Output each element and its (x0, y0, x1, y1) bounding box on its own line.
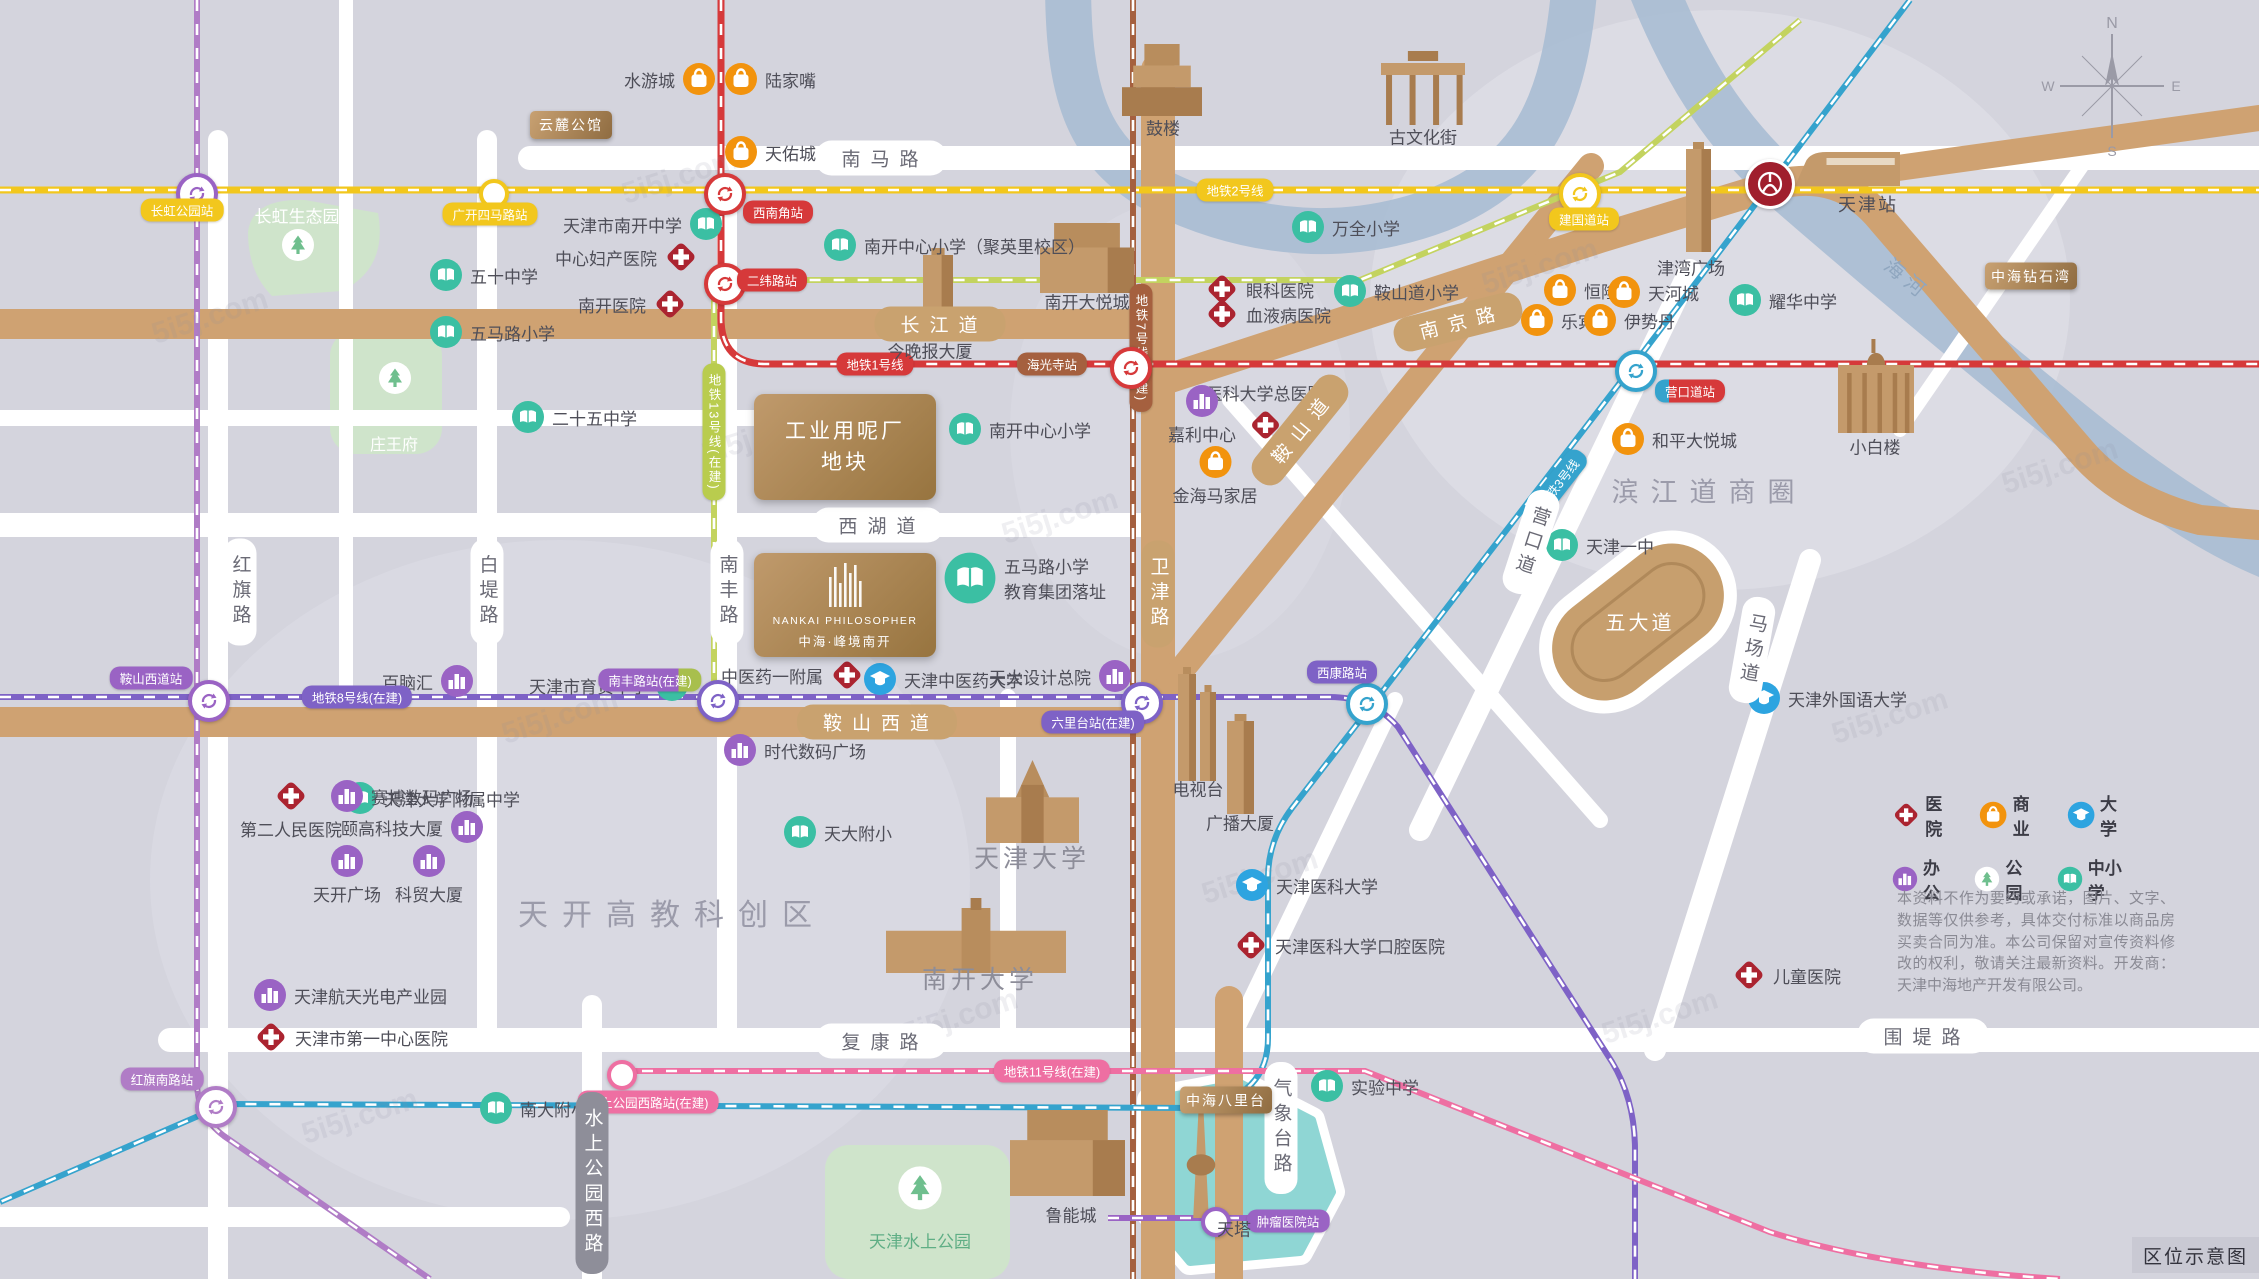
school-icon (429, 315, 463, 349)
shop-icon (1979, 800, 2007, 830)
poi-school: 天大附小 (783, 815, 892, 849)
metro-line-label: 地铁13号线(在建) (703, 363, 726, 500)
school-icon (1333, 274, 1367, 308)
poi-label: 南开中心小学 (989, 417, 1091, 442)
office-icon (253, 978, 287, 1012)
poi-label: 天佑城 (765, 140, 816, 165)
poi-school: 耀华中学 (1728, 283, 1837, 317)
interchange-icon (715, 274, 735, 294)
poi-hosp: 儿童医院 (1732, 958, 1841, 992)
school-icon (511, 400, 545, 434)
hosp-icon (254, 1020, 288, 1054)
poi-hosp: 中心妇产医院 (555, 240, 698, 274)
road-label: 西湖道 (812, 508, 943, 543)
map-label: 滨江道商圈 (1612, 471, 1807, 510)
road-label: 红旗路 (224, 539, 257, 646)
road-label: 围堤路 (1857, 1019, 1988, 1054)
station-interchange (1615, 350, 1657, 392)
shop-icon (1543, 273, 1577, 307)
shop-icon (724, 62, 758, 96)
hosp-icon (1732, 958, 1766, 992)
map-label: 天塔 (1217, 1216, 1251, 1241)
map-label: 南开大悦城 (1045, 289, 1130, 314)
school-icon (429, 258, 463, 292)
station-label: 营口道站 (1655, 380, 1725, 403)
school-icon (823, 228, 857, 262)
interchange-icon (708, 691, 728, 711)
poi-label: 科贸大厦 (395, 881, 463, 906)
interchange-icon (1626, 361, 1646, 381)
office-icon (723, 733, 757, 767)
park-icon (378, 361, 412, 395)
map-overlay: 5i5j.com5i5j.com5i5j.com5i5j.com5i5j.com… (0, 0, 2259, 1279)
poi-shop: 金海马家居 (1173, 445, 1258, 507)
metro-line-label: 地铁11号线(在建) (994, 1060, 1110, 1083)
plot-label: 工业用呢厂 (785, 416, 905, 448)
plot-label: 地块 (821, 447, 869, 479)
map-label: 五大道 (1606, 607, 1675, 636)
project-name-cn: 中海·峰境南开 (798, 631, 891, 650)
station-interchange (188, 680, 230, 722)
poi-label: 金海马家居 (1173, 482, 1258, 507)
poi-label: 水游城 (624, 67, 675, 92)
map-label: 小白楼 (1850, 434, 1901, 459)
station-label: 海光寺站 (1017, 353, 1087, 376)
poi-shop: 水游城 (624, 62, 716, 96)
project-main-plot: NANKAI PHILOSOPHER中海·峰境南开 (754, 553, 936, 657)
poi-label: 时代数码广场 (764, 738, 866, 763)
poi-univ: 天津外国语大学 (1747, 681, 1907, 715)
poi-label: 天河城 (1648, 280, 1699, 305)
station-label: 天津站 (1828, 189, 1908, 219)
station-label: 长虹公园站 (141, 199, 224, 222)
interchange-icon (199, 691, 219, 711)
map-label: 天津大学 (974, 839, 1090, 875)
map-label: 津湾广场 (1657, 255, 1725, 280)
poi-label: 天津市南开中学 (563, 212, 682, 237)
poi-shop: 天佑城 (724, 135, 816, 169)
hosp-icon (830, 658, 864, 692)
univ-icon (863, 662, 897, 696)
poi-label: 儿童医院 (1773, 963, 1841, 988)
road-label: 白堤路 (471, 539, 504, 646)
hosp-icon (1892, 800, 1920, 830)
poi-school: 天津一中 (1545, 528, 1654, 562)
legend-row: 医院商业大学 (1892, 790, 2132, 840)
poi-school: 万全小学 (1291, 210, 1400, 244)
poi-label: 第二人民医院 (240, 816, 342, 841)
poi-hosp: 第二人民医院 (240, 779, 342, 841)
station-interchange (195, 1086, 237, 1128)
interchange-icon (1357, 694, 1377, 714)
map-label: 庄王府 (370, 431, 418, 455)
poi-hosp: 南开医院 (578, 287, 687, 321)
map-label: 南开大学 (922, 960, 1038, 996)
shop-icon (1520, 303, 1554, 337)
metro-line-label: 地铁8号线(在建) (302, 686, 412, 709)
poi-label: 万全小学 (1332, 215, 1400, 240)
poi-office: 赛博数码广场 (330, 779, 473, 813)
poi-office: 颐高科技大厦 (341, 810, 484, 844)
poi-shop: 伊势丹 (1583, 303, 1675, 337)
school-icon (943, 551, 997, 605)
poi-hosp: 天津市第一中心医院 (254, 1020, 448, 1054)
poi-label: 天大附小 (824, 820, 892, 845)
project-badge: 中海八里台 (1180, 1087, 1272, 1114)
univ-icon (1235, 868, 1269, 902)
office-icon (1185, 384, 1219, 418)
poi-label: 嘉利中心 (1168, 421, 1236, 446)
poi-label: 伊势丹 (1624, 308, 1675, 333)
poi-univ: 天津医科大学 (1235, 868, 1378, 902)
poi-school: 南开中心小学 (948, 412, 1091, 446)
legend-item-shop: 商业 (1979, 790, 2044, 840)
legend-label: 大学 (2100, 790, 2132, 840)
legend-item-hosp: 医院 (1892, 790, 1957, 840)
poi-school: 天津市南开中学 (563, 207, 723, 241)
map-label: 广播大厦 (1206, 810, 1274, 835)
road-label: 气象台路 (1265, 1062, 1298, 1194)
shop-icon (1583, 303, 1617, 337)
poi-office: 天大设计总院 (989, 659, 1132, 693)
map-type-label: 区位示意图 (2132, 1237, 2259, 1273)
hosp-icon (664, 240, 698, 274)
road-label: 鞍山西道 (797, 705, 957, 740)
metro-line-label: 地铁2号线 (1197, 179, 1274, 202)
project-logo-icon (825, 561, 865, 607)
watermark: 5i5j.com (1598, 982, 1723, 1051)
school-icon (1310, 1069, 1344, 1103)
poi-label: 中医药一附属 (721, 663, 823, 688)
project-name-en: NANKAI PHILOSOPHER (773, 615, 918, 627)
poi-shop: 和平大悦城 (1611, 422, 1737, 456)
poi-label: 天开广场 (313, 881, 381, 906)
poi-park (897, 1165, 943, 1211)
road-label: 水上公园西路 (576, 1092, 609, 1274)
interchange-icon (1121, 358, 1141, 378)
station-stop (607, 1060, 637, 1090)
poi-label: 鞍山道小学 (1374, 279, 1459, 304)
map-label: 电视台 (1173, 776, 1224, 801)
poi-label: 中心妇产医院 (555, 245, 657, 270)
poi-label: 天大设计总院 (989, 664, 1091, 689)
station-label: 西南角站 (743, 201, 813, 224)
location-map: NWES 5i5j.com5i5j.com5i5j.com5i5j.com5i5… (0, 0, 2259, 1279)
road-label: 长江道 (874, 307, 1005, 342)
watermark: 5i5j.com (148, 282, 273, 351)
poi-label: 天津医科大学口腔医院 (1275, 933, 1445, 958)
legend-label: 商业 (2013, 790, 2045, 840)
poi-hosp: 天津医科大学口腔医院 (1234, 928, 1445, 962)
school-icon (948, 412, 982, 446)
road-label: 南马路 (815, 141, 946, 176)
station-label: 红旗南路站 (121, 1068, 204, 1091)
project-industrial-plot: 工业用呢厂地块 (754, 394, 936, 500)
station-label: 广开四马路站 (442, 203, 537, 226)
poi-label: 天津市第一中心医院 (295, 1025, 448, 1050)
poi-label: 天津一中 (1586, 533, 1654, 558)
hosp-icon (1205, 297, 1239, 331)
map-label: 天开高教科创区 (518, 890, 826, 934)
road-label: 复康路 (815, 1024, 946, 1059)
poi-school: 五马路小学 (429, 315, 555, 349)
map-label: 海河 (1879, 250, 1937, 306)
map-label: 长虹生态园 (255, 203, 340, 228)
station-label: 南丰路站(在建) (598, 669, 701, 692)
school-icon (1291, 210, 1325, 244)
office-icon (330, 844, 364, 878)
poi-label: 颐高科技大厦 (341, 815, 443, 840)
office-icon (412, 844, 446, 878)
poi-school: 实验中学 (1310, 1069, 1419, 1103)
legend-item-univ: 大学 (2067, 790, 2132, 840)
station-label: 鞍山西道站 (110, 667, 193, 690)
disclaimer-text: 本资料不作为要约或承诺，图片、文字、数据等仅供参考，具体交付标准以商品房买卖合同… (1897, 888, 2175, 997)
map-label: 天津水上公园 (869, 1228, 971, 1253)
poi-school: 南开中心小学（聚英里校区） (823, 228, 1085, 262)
school-icon (783, 815, 817, 849)
poi-label: 血液病医院 (1246, 302, 1331, 327)
shop-icon (724, 135, 758, 169)
poi-school: 五十中学 (429, 258, 538, 292)
project-badge: 云麓公馆 (530, 111, 612, 139)
poi-label: 陆家嘴 (765, 67, 816, 92)
hosp-icon (1234, 928, 1268, 962)
poi-label: 南开医院 (578, 292, 646, 317)
poi-label: 南开中心小学（聚英里校区） (864, 233, 1085, 258)
poi-school: 南大附小 (479, 1091, 588, 1125)
hosp-icon (653, 287, 687, 321)
univ-icon (2067, 800, 2095, 830)
poi-label: 五马路小学 (470, 320, 555, 345)
station-interchange (697, 680, 739, 722)
road-label: 卫津路 (1142, 541, 1175, 648)
station-label: 建国道站 (1549, 208, 1619, 231)
poi-office: 天开广场 (313, 844, 381, 906)
map-label: 今晚报大厦 (888, 338, 973, 363)
shop-icon (1198, 445, 1232, 479)
poi-label: 天津航天光电产业园 (294, 983, 447, 1008)
interchange-icon (715, 184, 735, 204)
interchange-icon (206, 1097, 226, 1117)
poi-school: 二十五中学 (511, 400, 637, 434)
interchange-icon (1570, 184, 1590, 204)
station-interchange (704, 173, 746, 215)
poi-label: 五马路小学教育集团落址 (1004, 553, 1106, 603)
railway-logo-icon (1755, 169, 1785, 199)
poi-label: 二十五中学 (552, 405, 637, 430)
station-railway (1745, 159, 1795, 209)
poi-hosp: 血液病医院 (1205, 297, 1331, 331)
station-label: 肿瘤医院站 (1247, 1210, 1330, 1233)
hosp-icon (274, 779, 308, 813)
poi-label: 五十中学 (470, 263, 538, 288)
map-label: 鲁能城 (1046, 1202, 1097, 1227)
poi-office: 科贸大厦 (395, 844, 463, 906)
poi-park (281, 228, 315, 262)
legend-label: 医院 (1925, 790, 1957, 840)
poi-hosp: 中医药一附属 (721, 658, 864, 692)
station-label: 二纬路站 (737, 269, 807, 292)
shop-icon (682, 62, 716, 96)
office-icon (450, 810, 484, 844)
poi-school: 五马路小学教育集团落址 (943, 551, 1106, 605)
poi-label: 和平大悦城 (1652, 427, 1737, 452)
office-icon (330, 779, 364, 813)
poi-office: 嘉利中心 (1168, 384, 1236, 446)
poi-school: 鞍山道小学 (1333, 274, 1459, 308)
poi-office: 天津航天光电产业园 (253, 978, 447, 1012)
park-icon (281, 228, 315, 262)
poi-park (378, 361, 412, 395)
park-icon (897, 1165, 943, 1211)
map-label: 鼓楼 (1146, 115, 1180, 140)
map-label: 古文化街 (1389, 124, 1457, 149)
project-badge: 中海钻石湾 (1985, 263, 2077, 290)
school-icon (1728, 283, 1762, 317)
office-icon (440, 664, 474, 698)
station-label: 六里台站(在建) (1041, 711, 1144, 734)
watermark: 5i5j.com (1998, 432, 2123, 501)
poi-label: 天津医科大学 (1276, 873, 1378, 898)
poi-label: 天津外国语大学 (1788, 686, 1907, 711)
school-icon (479, 1091, 513, 1125)
station-interchange (1110, 347, 1152, 389)
station-label: 西康路站 (1307, 661, 1377, 684)
station-interchange (1346, 683, 1388, 725)
watermark: 5i5j.com (298, 1082, 423, 1151)
road-label: 南丰路 (711, 539, 744, 646)
poi-shop: 陆家嘴 (724, 62, 816, 96)
watermark: 5i5j.com (998, 482, 1123, 551)
poi-label: 赛博数码广场 (371, 784, 473, 809)
poi-label: 实验中学 (1351, 1074, 1419, 1099)
shop-icon (1611, 422, 1645, 456)
poi-label: 耀华中学 (1769, 288, 1837, 313)
